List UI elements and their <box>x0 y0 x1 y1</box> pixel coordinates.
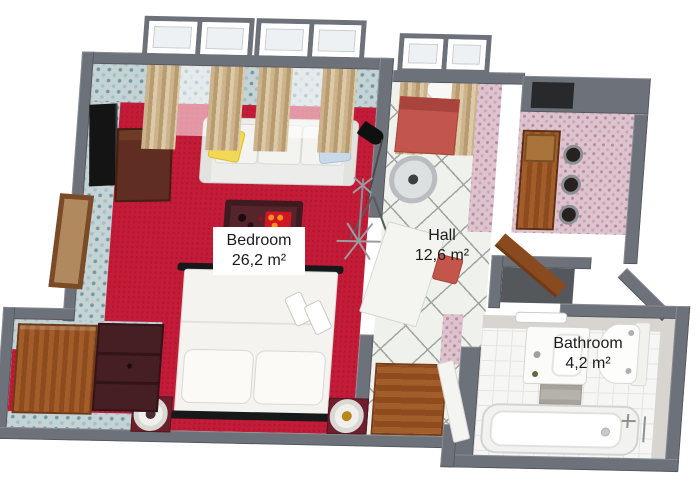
bathroom-label-name: Bathroom <box>533 334 643 354</box>
floor-plan-canvas: Bedroom 26,2 m² Hall 12,6 m² Bathroom 4,… <box>0 0 700 500</box>
table-decor <box>238 214 247 222</box>
bench <box>394 96 460 155</box>
window-bay-2 <box>254 18 367 62</box>
double-bed <box>169 263 340 422</box>
tray-bowl <box>277 215 283 221</box>
wall-bathroom-top <box>559 304 690 320</box>
curtains-bay-1-right <box>205 66 245 151</box>
window-pane <box>200 22 250 55</box>
bathroom-label: Bathroom 4,2 m² <box>533 330 643 378</box>
window-pane <box>259 23 309 56</box>
towel-rack <box>515 312 568 324</box>
tray-bowl <box>268 214 274 220</box>
bedroom-label: Bedroom 26,2 m² <box>213 227 305 275</box>
curtains-bay-2-right <box>317 69 357 154</box>
curtains-bay-2-left <box>253 67 293 152</box>
window-pane <box>402 38 443 69</box>
coat-rack <box>334 174 388 255</box>
entry-wood-floor <box>370 363 447 436</box>
bedroom-label-area: 26,2 m² <box>213 251 305 271</box>
bed-pillow-left <box>181 349 255 404</box>
bathtub <box>479 403 641 456</box>
table-lamp-right-center <box>341 411 352 421</box>
counter-box <box>524 134 557 163</box>
bed-pillow-right <box>253 350 327 405</box>
window-pane <box>147 21 197 54</box>
storage-basket <box>539 384 582 405</box>
shelf-decor <box>127 364 132 369</box>
round-mirror-center <box>408 174 419 184</box>
door-mat <box>531 82 575 109</box>
curtains-bay-1-left <box>141 65 181 150</box>
window-bay-3 <box>397 33 492 75</box>
shelf-line <box>96 381 158 385</box>
floor-plan <box>0 7 700 491</box>
hall-label: Hall 12,6 m² <box>392 222 492 270</box>
bathroom-label-area: 4,2 m² <box>533 354 643 374</box>
shelf-line <box>98 352 160 356</box>
hall-label-area: 12,6 m² <box>392 246 492 266</box>
window-bay-1 <box>142 16 255 60</box>
hall-label-name: Hall <box>392 226 492 246</box>
bedroom-label-name: Bedroom <box>213 231 305 251</box>
tv <box>89 103 117 186</box>
sideboard <box>12 323 99 415</box>
window-pane <box>446 39 487 70</box>
window-pane <box>312 24 362 57</box>
table-decor <box>258 216 263 221</box>
shelf-unit <box>92 323 164 412</box>
